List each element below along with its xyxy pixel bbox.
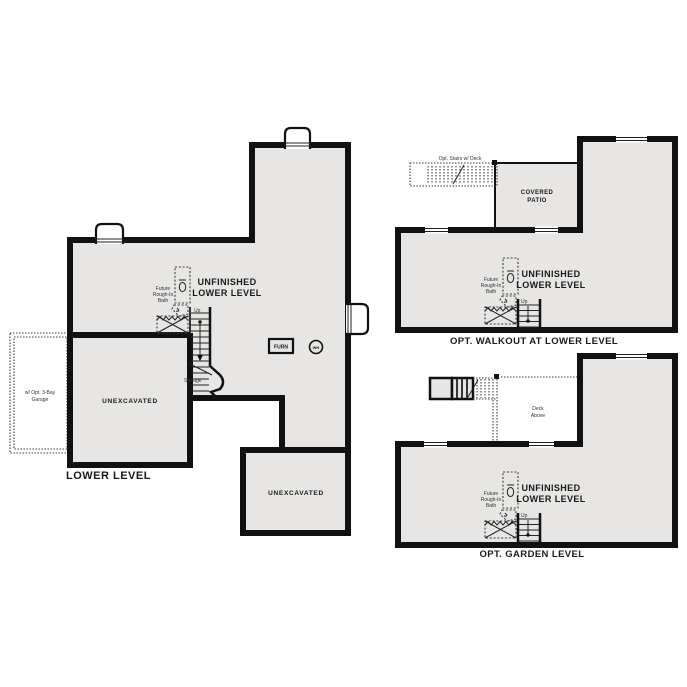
opt-stairs-deck-label: Opt. Stairs w/ Deck	[439, 156, 482, 162]
garden-plan: Deck Above Future Rough-In Bath	[398, 353, 675, 561]
water-heater-label: WH	[313, 345, 320, 350]
unfinished-label-line2: LOWER LEVEL	[192, 288, 262, 298]
garden-unfinished-line1: UNFINISHED	[521, 483, 580, 493]
garage-option-outline: w/ Opt. 3-Bay Garage	[10, 333, 71, 453]
walkout-unfinished-line2: LOWER LEVEL	[516, 280, 586, 290]
garden-unfinished-line2: LOWER LEVEL	[516, 494, 586, 504]
walkout-up-label: Up	[521, 299, 528, 305]
unexcavated-right-label: UNEXCAVATED	[268, 490, 324, 497]
covered-patio-label-line2: PATIO	[527, 198, 546, 204]
walkout-unfinished-line1: UNFINISHED	[521, 269, 580, 279]
walkout-plan: Opt. Stairs w/ Deck Future Rough-In Bath…	[398, 136, 675, 348]
stair-up-label: Up	[194, 308, 201, 314]
deck-stairs	[430, 378, 496, 399]
covered-patio	[495, 163, 580, 230]
floorplan-drawing: w/ Opt. 3-Bay Garage Up	[0, 0, 687, 687]
storage-label: Storage	[184, 378, 202, 384]
furnace: FURN	[269, 339, 293, 353]
window-well-top	[284, 128, 311, 149]
lower-level-title: LOWER LEVEL	[66, 470, 151, 482]
garden-bath-line3: Bath	[486, 503, 497, 509]
opt-stairs-deck: Opt. Stairs w/ Deck	[410, 156, 497, 186]
furnace-label: FURN	[274, 345, 288, 351]
window-well-left	[95, 224, 124, 244]
lower-level-plan: w/ Opt. 3-Bay Garage Up	[10, 128, 368, 533]
deck-above-outline: Deck Above	[493, 374, 578, 441]
unexcavated-left-label: UNEXCAVATED	[102, 398, 158, 405]
future-bath-label-line3: Bath	[158, 298, 169, 304]
covered-patio-label-line1: COVERED	[521, 190, 554, 196]
unfinished-label-line1: UNFINISHED	[197, 277, 256, 287]
walkout-title: OPT. WALKOUT AT LOWER LEVEL	[450, 336, 618, 347]
garage-option-label-line2: Garage	[32, 397, 49, 403]
garden-up-label: Up	[521, 513, 528, 519]
window-well-right	[346, 304, 368, 334]
deck-above-label-line2: Above	[531, 413, 545, 419]
floorplan-sheet: w/ Opt. 3-Bay Garage Up	[0, 0, 687, 687]
deck-above-label-line1: Deck	[532, 406, 544, 412]
walkout-bath-line3: Bath	[486, 289, 497, 295]
water-heater: WH	[310, 341, 323, 354]
garden-title: OPT. GARDEN LEVEL	[480, 549, 585, 560]
garage-option-label-line1: w/ Opt. 3-Bay	[25, 390, 56, 396]
